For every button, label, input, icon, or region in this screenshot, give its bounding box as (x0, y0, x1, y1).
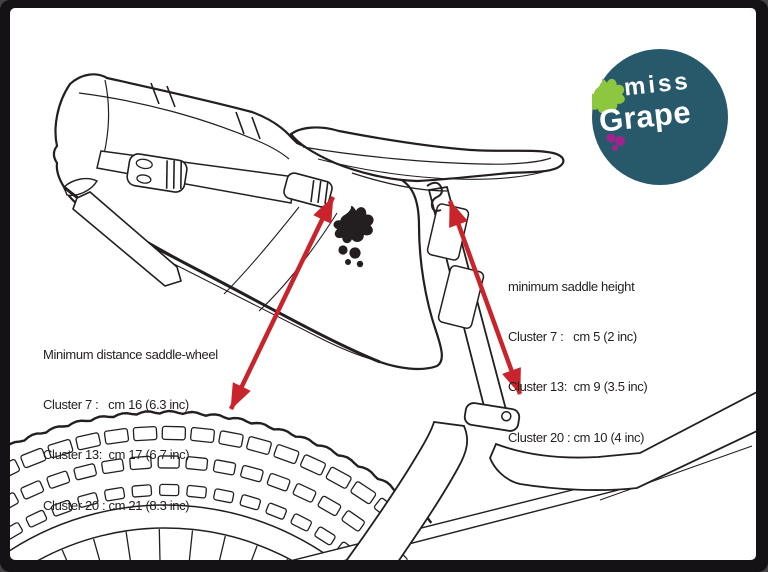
tire-knob (341, 510, 365, 532)
tire-knob (350, 481, 376, 505)
saddle-wheel-line-cluster13: Cluster 13: cm 17 (6.7 inc) (43, 447, 218, 464)
tire-knob (292, 483, 316, 503)
saddle-height-title: minimum saddle height (508, 279, 647, 296)
tire-knob (273, 444, 299, 464)
spoke (232, 546, 258, 572)
spoke (254, 559, 288, 572)
tire-knob (317, 495, 341, 516)
tire-knob (0, 459, 20, 481)
tire-knob (246, 436, 272, 455)
saddle-height-line-cluster7: Cluster 7 : cm 5 (2 inc) (508, 329, 647, 346)
tire-knob (325, 467, 351, 489)
tire-knob (314, 526, 336, 545)
saddle-height-line-cluster13: Cluster 13: cm 9 (3.5 inc) (508, 379, 647, 396)
spoke (62, 550, 91, 572)
saddle-height-block: minimum saddle height Cluster 7 : cm 5 (… (508, 245, 647, 480)
tire-knob (1, 522, 23, 541)
seat-stay-tube (278, 480, 618, 572)
tire-knob (300, 454, 326, 475)
saddle-wheel-line-cluster7: Cluster 7 : cm 16 (6.3 inc) (43, 397, 218, 414)
saddle-wheel-distance-block: Minimum distance saddle-wheel Cluster 7 … (43, 313, 218, 548)
brand-logo: miss Grape (592, 49, 728, 185)
tire-knob (20, 480, 44, 499)
tire-knob (219, 431, 244, 448)
tire-knob (240, 494, 261, 510)
diagram-frame: Minimum distance saddle-wheel Cluster 7 … (0, 0, 768, 572)
tire-knob (290, 513, 312, 531)
saddle-wheel-distance-title: Minimum distance saddle-wheel (43, 347, 218, 364)
saddle-wheel-line-cluster20: Cluster 20 : cm 21 (8.3 inc) (43, 498, 218, 515)
tire-knob (265, 503, 287, 520)
tire-knob (358, 559, 379, 572)
saddle-height-line-cluster20: Cluster 20 : cm 10 (4 inc) (508, 430, 647, 447)
tire-knob (240, 465, 263, 482)
tire-knob (267, 473, 291, 491)
tire-knob (0, 492, 19, 513)
